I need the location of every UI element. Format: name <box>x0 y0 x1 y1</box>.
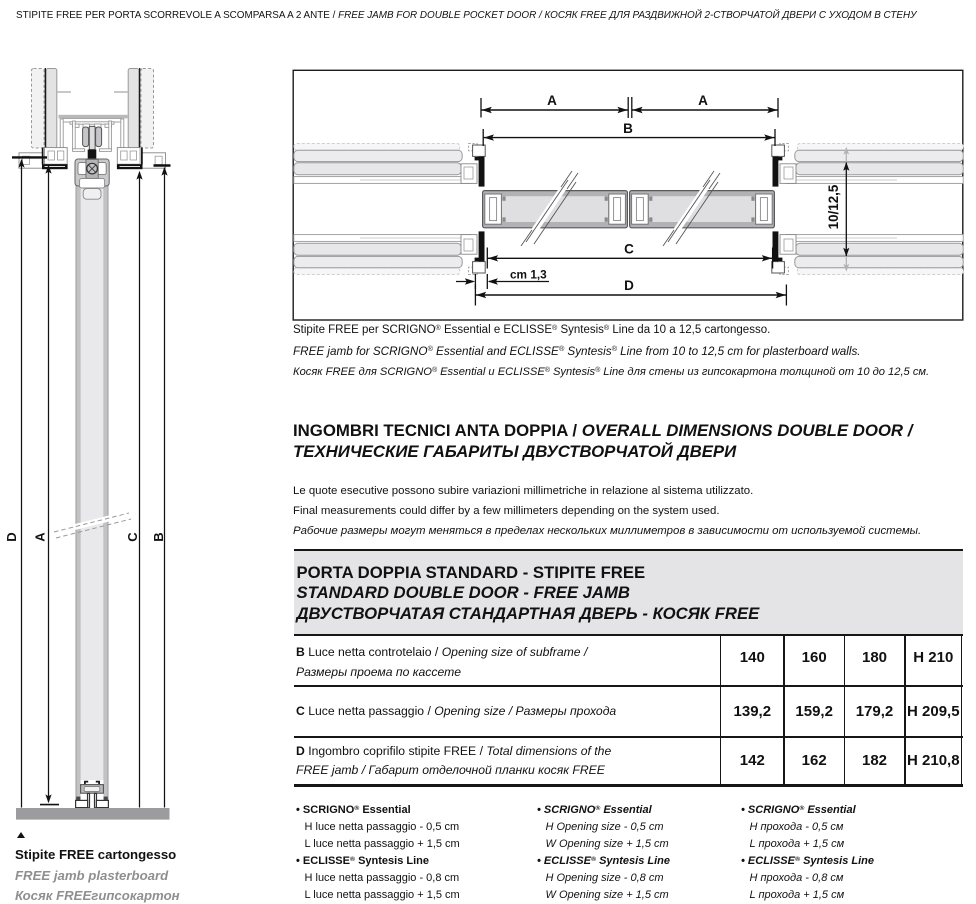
svg-text:A: A <box>698 93 708 108</box>
svg-text:C: C <box>624 242 634 257</box>
svg-text:A: A <box>33 532 48 542</box>
svg-text:10/12,5: 10/12,5 <box>826 184 841 229</box>
svg-text:C: C <box>125 532 140 542</box>
svg-text:cm 1,3: cm 1,3 <box>510 268 547 282</box>
svg-text:D: D <box>624 278 634 293</box>
svg-text:B: B <box>623 121 633 136</box>
svg-text:D: D <box>4 532 19 541</box>
svg-text:B: B <box>151 532 166 541</box>
svg-text:A: A <box>547 93 557 108</box>
